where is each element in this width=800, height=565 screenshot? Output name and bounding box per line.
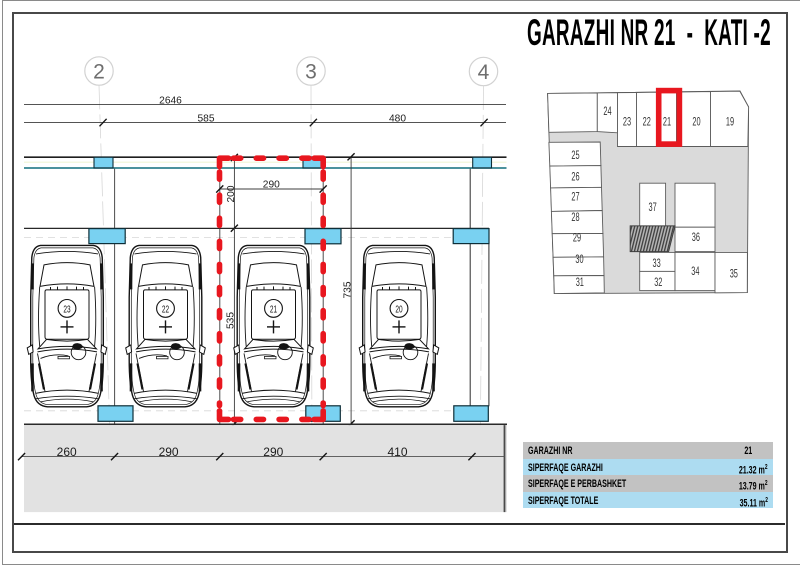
svg-text:20: 20 bbox=[692, 116, 701, 129]
svg-text:33: 33 bbox=[652, 258, 661, 271]
svg-text:21: 21 bbox=[270, 303, 277, 315]
svg-text:34: 34 bbox=[691, 265, 700, 278]
svg-text:23: 23 bbox=[623, 116, 632, 129]
svg-text:32: 32 bbox=[654, 276, 662, 289]
svg-text:25: 25 bbox=[571, 149, 580, 162]
svg-text:22: 22 bbox=[162, 303, 169, 315]
svg-text:735: 735 bbox=[342, 281, 353, 298]
svg-text:30: 30 bbox=[575, 254, 584, 267]
svg-text:290: 290 bbox=[159, 445, 179, 459]
svg-text:20: 20 bbox=[395, 303, 402, 315]
svg-text:585: 585 bbox=[198, 113, 215, 124]
svg-text:535: 535 bbox=[226, 312, 237, 329]
svg-text:35: 35 bbox=[730, 268, 739, 281]
svg-text:36: 36 bbox=[692, 231, 701, 244]
svg-text:29: 29 bbox=[573, 232, 582, 245]
svg-text:23: 23 bbox=[63, 303, 70, 315]
svg-text:2646: 2646 bbox=[159, 95, 182, 106]
svg-text:200: 200 bbox=[226, 185, 237, 202]
svg-text:26: 26 bbox=[571, 171, 580, 184]
svg-text:21: 21 bbox=[663, 116, 672, 129]
svg-text:28: 28 bbox=[571, 211, 580, 224]
svg-text:22: 22 bbox=[643, 116, 651, 129]
svg-text:19: 19 bbox=[726, 116, 735, 129]
svg-text:4: 4 bbox=[478, 61, 490, 84]
svg-text:31: 31 bbox=[576, 276, 585, 289]
svg-text:2: 2 bbox=[93, 61, 105, 84]
svg-text:3: 3 bbox=[305, 61, 317, 84]
svg-text:480: 480 bbox=[389, 113, 406, 124]
svg-text:37: 37 bbox=[648, 201, 656, 214]
svg-text:290: 290 bbox=[263, 179, 280, 190]
svg-text:410: 410 bbox=[387, 445, 407, 459]
svg-text:290: 290 bbox=[263, 445, 283, 459]
svg-text:24: 24 bbox=[603, 106, 612, 119]
svg-text:27: 27 bbox=[571, 191, 579, 204]
svg-text:260: 260 bbox=[57, 445, 77, 459]
